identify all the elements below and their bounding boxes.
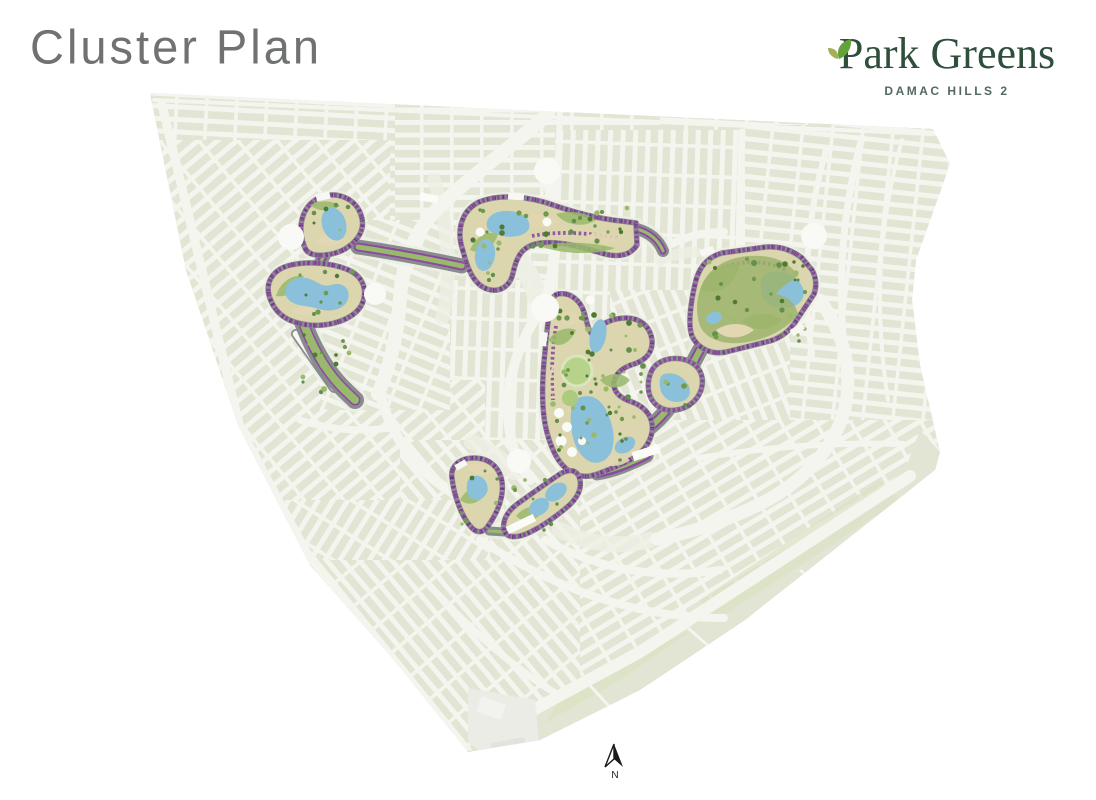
svg-text:N: N xyxy=(611,770,618,781)
